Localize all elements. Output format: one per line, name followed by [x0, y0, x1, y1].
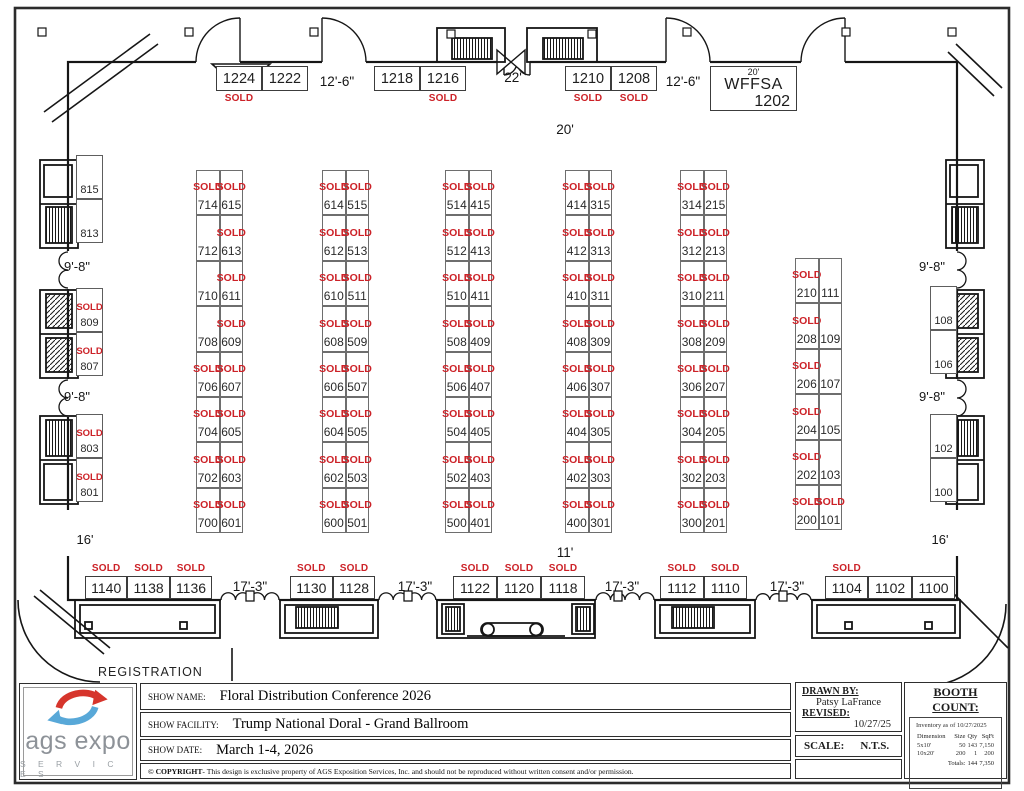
booth-number: 809: [80, 317, 98, 329]
booth-number: 610: [324, 289, 344, 303]
copyright-prefix: © COPYRIGHT: [148, 767, 202, 776]
booth-501[interactable]: SOLD501: [346, 488, 370, 533]
booth-number: 303: [590, 471, 610, 485]
dimension-label: 9'-8": [47, 389, 107, 404]
booth-count-cell: 143: [966, 742, 978, 751]
logo-subtext: S E R V I C E S: [20, 759, 136, 779]
booth-number: 507: [347, 380, 367, 394]
booth-511[interactable]: SOLD511: [346, 261, 370, 306]
booth-number: 201: [705, 516, 725, 530]
booth-403[interactable]: SOLD403: [469, 442, 493, 487]
sold-label: SOLD: [701, 499, 730, 511]
booth-1104[interactable]: 1104: [825, 576, 868, 599]
booth-1112[interactable]: 1112: [660, 576, 704, 599]
inventory-note: Inventory as of 10/27/2025: [916, 722, 995, 729]
booth-count-cell: 1: [966, 750, 978, 759]
booth-111[interactable]: 111: [819, 258, 843, 303]
booth-number: 607: [221, 380, 241, 394]
logo-text: ags expo: [25, 727, 130, 756]
booth-number: 209: [705, 335, 725, 349]
booth-number: 205: [705, 425, 725, 439]
booth-509[interactable]: SOLD509: [346, 306, 370, 351]
booth-number: 502: [447, 471, 467, 485]
booth-813[interactable]: 813: [76, 199, 103, 243]
sold-label: SOLD: [565, 93, 611, 104]
booth-407[interactable]: SOLD407: [469, 352, 493, 397]
registration-label: REGISTRATION: [98, 665, 238, 679]
booth-107[interactable]: 107: [819, 349, 843, 394]
dimension-label: 17'-3": [380, 579, 450, 594]
booth-number: 300: [682, 516, 702, 530]
booth-number: 612: [324, 244, 344, 258]
booth-100[interactable]: 100: [930, 458, 957, 502]
booth-number: 513: [347, 244, 367, 258]
dimension-label: 12'-6": [648, 74, 718, 89]
booth-number: 311: [591, 289, 610, 303]
booth-303[interactable]: SOLD303: [589, 442, 613, 487]
booth-count-cell: [916, 760, 947, 769]
booth-105[interactable]: 105: [819, 394, 843, 439]
sold-label: SOLD: [217, 318, 246, 330]
sold-label: SOLD: [466, 363, 495, 375]
booth-number: 600: [324, 516, 344, 530]
sold-label: SOLD: [170, 563, 212, 574]
booth-number: 400: [567, 516, 587, 530]
booth-count-cell: SqFt: [978, 733, 995, 742]
booth-611[interactable]: SOLD611: [220, 261, 244, 306]
ags-expo-logo: ags expo S E R V I C E S: [19, 683, 137, 780]
booth-1216[interactable]: 1216: [420, 66, 466, 91]
scale-value: N.T.S.: [860, 740, 889, 752]
booth-count-cell: 5x10': [916, 742, 947, 751]
sold-label: SOLD: [704, 563, 748, 574]
booth-1102[interactable]: 1102: [868, 576, 911, 599]
sold-label: SOLD: [290, 563, 333, 574]
booth-number: 108: [934, 315, 952, 327]
booth-count-box: BOOTH COUNT: Inventory as of 10/27/2025 …: [904, 682, 1007, 779]
booth-count-cell: Totals:: [947, 760, 967, 769]
booth-307[interactable]: SOLD307: [589, 352, 613, 397]
booth-505[interactable]: SOLD505: [346, 397, 370, 442]
booth-number: 608: [324, 335, 344, 349]
show-facility-value: Trump National Doral - Grand Ballroom: [233, 716, 469, 733]
logo-swirl-icon: [47, 685, 109, 729]
booth-315[interactable]: SOLD315: [589, 170, 613, 215]
dimension-label: 17'-3": [587, 579, 657, 594]
booth-507[interactable]: SOLD507: [346, 352, 370, 397]
booth-number: 315: [590, 198, 610, 212]
booth-515[interactable]: SOLD515: [346, 170, 370, 215]
booth-1100[interactable]: 1100: [912, 576, 955, 599]
booth-309[interactable]: SOLD309: [589, 306, 613, 351]
dimension-label: 9'-8": [902, 259, 962, 274]
sold-label: SOLD: [420, 93, 466, 104]
booth-401[interactable]: SOLD401: [469, 488, 493, 533]
booth-number: 505: [347, 425, 367, 439]
sold-label: SOLD: [701, 454, 730, 466]
dimension-label: 22': [478, 70, 548, 85]
booth-215[interactable]: SOLD215: [704, 170, 728, 215]
booth-number: 702: [198, 471, 218, 485]
booth-1122[interactable]: 1122: [453, 576, 497, 599]
booth-number: 200: [797, 513, 817, 527]
sold-label: SOLD: [343, 454, 372, 466]
booth-number: 211: [706, 289, 725, 303]
booth-count-table: DimensionSizeQtySqFt5x10'501437,15010x20…: [916, 733, 995, 769]
booth-311[interactable]: SOLD311: [589, 261, 613, 306]
booth-number: 411: [471, 289, 490, 303]
booth-number: 301: [590, 516, 610, 530]
booth-number: 100: [934, 487, 952, 499]
show-facility-label: SHOW FACILITY:: [148, 720, 219, 730]
sold-label: SOLD: [343, 363, 372, 375]
booth-number: 410: [567, 289, 587, 303]
booth-103[interactable]: 103: [819, 440, 843, 485]
booth-615[interactable]: SOLD615: [220, 170, 244, 215]
sold-label: SOLD: [453, 563, 497, 574]
sold-label: SOLD: [586, 454, 615, 466]
booth-count-cell: Size: [947, 733, 967, 742]
sold-label: SOLD: [816, 496, 845, 508]
sold-label: SOLD: [217, 454, 246, 466]
booth-number: 106: [934, 359, 952, 371]
booth-801[interactable]: SOLD801: [76, 458, 103, 502]
sold-label: SOLD: [586, 408, 615, 420]
booth-number: 509: [347, 335, 367, 349]
booth-809[interactable]: SOLD809: [76, 288, 103, 332]
booth-count-inner: Inventory as of 10/27/2025 DimensionSize…: [909, 717, 1002, 789]
booth-number: 503: [347, 471, 367, 485]
booth-209[interactable]: SOLD209: [704, 306, 728, 351]
booth-number: 111: [821, 286, 839, 300]
booth-count-cell: Qty: [966, 733, 978, 742]
booth-405[interactable]: SOLD405: [469, 397, 493, 442]
booth-number: 510: [447, 289, 467, 303]
booth-1130[interactable]: 1130: [290, 576, 333, 599]
booth-513[interactable]: SOLD513: [346, 215, 370, 260]
sold-label: SOLD: [586, 318, 615, 330]
sold-label: SOLD: [466, 454, 495, 466]
booth-number: 312: [682, 244, 702, 258]
booth-number: 306: [682, 380, 702, 394]
booth-count-cell: Dimension: [916, 733, 947, 742]
sold-label: SOLD: [333, 563, 376, 574]
booth-number: 714: [198, 198, 218, 212]
sold-label: SOLD: [343, 181, 372, 193]
booth-number: 813: [80, 228, 98, 240]
booth-number: 500: [447, 516, 467, 530]
revised-label: REVISED:: [802, 708, 895, 719]
sold-label: SOLD: [466, 499, 495, 511]
sold-label: SOLD: [217, 363, 246, 375]
booth-number: 210: [797, 286, 817, 300]
sold-label: SOLD: [343, 272, 372, 284]
booth-number: 409: [470, 335, 490, 349]
dimension-label: 17'-3": [215, 579, 285, 594]
show-name-row: SHOW NAME: Floral Distribution Conferenc…: [140, 683, 791, 710]
dimension-label: 16': [55, 532, 115, 547]
booth-number: 801: [80, 487, 98, 499]
booth-count-cell: 200: [947, 750, 967, 759]
booth-207[interactable]: SOLD207: [704, 352, 728, 397]
title-block: ags expo S E R V I C E S SHOW NAME: Flor…: [16, 680, 1008, 782]
sold-label: SOLD: [466, 272, 495, 284]
booth-313[interactable]: SOLD313: [589, 215, 613, 260]
booth-number: 602: [324, 471, 344, 485]
booth-count-cell: 10x20': [916, 750, 947, 759]
booth-number: 305: [590, 425, 610, 439]
booth-number: 402: [567, 471, 587, 485]
booth-807[interactable]: SOLD807: [76, 332, 103, 376]
booth-1224[interactable]: 1224: [216, 66, 262, 91]
booth-number: 102: [934, 443, 952, 455]
booth-number: 515: [347, 198, 367, 212]
show-name-value: Floral Distribution Conference 2026: [220, 688, 431, 705]
booth-number: 604: [324, 425, 344, 439]
booth-number: 508: [447, 335, 467, 349]
booth-number: 506: [447, 380, 467, 394]
sold-label: SOLD: [76, 346, 102, 357]
booth-607[interactable]: SOLD607: [220, 352, 244, 397]
sold-label: SOLD: [85, 563, 127, 574]
empty-box: [795, 759, 902, 779]
booth-number: 504: [447, 425, 467, 439]
booth-815[interactable]: 815: [76, 155, 103, 199]
booth-count-cell: 7,350: [978, 760, 995, 769]
dim-bottom-center: 11': [535, 545, 595, 560]
sold-label: SOLD: [792, 406, 821, 418]
sold-label: SOLD: [586, 227, 615, 239]
sold-label: SOLD: [343, 227, 372, 239]
sold-label: SOLD: [701, 408, 730, 420]
sold-label: SOLD: [586, 181, 615, 193]
booth-411[interactable]: SOLD411: [469, 261, 493, 306]
booth-number: 406: [567, 380, 587, 394]
booth-number: 403: [470, 471, 490, 485]
booth-number: 309: [590, 335, 610, 349]
booth-203[interactable]: SOLD203: [704, 442, 728, 487]
sold-label: SOLD: [76, 428, 102, 439]
booth-number: 304: [682, 425, 702, 439]
sold-label: SOLD: [792, 360, 821, 372]
floorplan-sheet: 1224SOLD122212181216SOLD1210SOLD1208SOLD…: [0, 0, 1024, 791]
dimension-label: 17'-3": [752, 579, 822, 594]
sold-label: SOLD: [701, 181, 730, 193]
sold-label: SOLD: [466, 318, 495, 330]
booth-213[interactable]: SOLD213: [704, 215, 728, 260]
booth-1120[interactable]: 1120: [497, 576, 541, 599]
booth-number: 605: [221, 425, 241, 439]
sold-label: SOLD: [217, 408, 246, 420]
booth-1138[interactable]: 1138: [127, 576, 169, 599]
booth-409[interactable]: SOLD409: [469, 306, 493, 351]
booth-number: 512: [447, 244, 467, 258]
sold-label: SOLD: [343, 408, 372, 420]
booth-number: 803: [80, 443, 98, 455]
copyright-row: © COPYRIGHT - This design is exclusive p…: [140, 763, 791, 779]
dimension-label: 9'-8": [47, 259, 107, 274]
booth-number: 206: [797, 377, 817, 391]
booth-204[interactable]: SOLD204: [795, 394, 819, 439]
sold-label: SOLD: [217, 499, 246, 511]
show-facility-row: SHOW FACILITY: Trump National Doral - Gr…: [140, 712, 791, 737]
booth-number: 511: [348, 289, 367, 303]
booth-number: 408: [567, 335, 587, 349]
drawn-by-box: DRAWN BY: Patsy LaFrance REVISED: 10/27/…: [795, 682, 902, 732]
dimension-label: 12'-6": [302, 74, 372, 89]
show-date-label: SHOW DATE:: [148, 745, 202, 755]
booth-number: 202: [797, 468, 817, 482]
booth-number: 302: [682, 471, 702, 485]
booth-number: 308: [682, 335, 702, 349]
booth-803[interactable]: SOLD803: [76, 414, 103, 458]
sold-label: SOLD: [466, 181, 495, 193]
booth-413[interactable]: SOLD413: [469, 215, 493, 260]
booth-number: 807: [80, 361, 98, 373]
booth-609[interactable]: SOLD609: [220, 306, 244, 351]
show-name-label: SHOW NAME:: [148, 692, 206, 702]
booth-106[interactable]: 106: [930, 330, 957, 374]
show-date-row: SHOW DATE: March 1-4, 2026: [140, 739, 791, 761]
booth-number: 611: [222, 289, 241, 303]
booth-number: 609: [221, 335, 241, 349]
drawn-by-label: DRAWN BY:: [802, 686, 895, 697]
booth-number: 207: [705, 380, 725, 394]
sold-label: SOLD: [586, 272, 615, 284]
booth-number: 708: [198, 335, 218, 349]
revised-value: 10/27/25: [802, 719, 895, 730]
booth-number: 706: [198, 380, 218, 394]
sold-label: SOLD: [660, 563, 704, 574]
booth-number: 413: [470, 244, 490, 258]
booth-number: 704: [198, 425, 218, 439]
sold-label: SOLD: [792, 315, 821, 327]
booth-number: 614: [324, 198, 344, 212]
sold-label: SOLD: [76, 472, 102, 483]
booth-number: 208: [797, 332, 817, 346]
booth-1136[interactable]: 1136: [170, 576, 212, 599]
booth-company-name: WFFSA: [711, 77, 796, 94]
booth-205[interactable]: SOLD205: [704, 397, 728, 442]
booth-number: 712: [198, 244, 218, 258]
sold-label: SOLD: [127, 563, 169, 574]
booth-number: 107: [820, 377, 840, 391]
booth-count-title: BOOTH COUNT:: [909, 685, 1002, 715]
sold-label: SOLD: [792, 269, 821, 281]
booth-count-cell: 50: [947, 742, 967, 751]
sold-label: SOLD: [701, 363, 730, 375]
sold-label: SOLD: [217, 272, 246, 284]
sold-label: SOLD: [701, 227, 730, 239]
booth-1128[interactable]: 1128: [333, 576, 376, 599]
booth-101[interactable]: SOLD101: [819, 485, 843, 530]
sold-label: SOLD: [541, 563, 585, 574]
sold-label: SOLD: [497, 563, 541, 574]
sold-label: SOLD: [343, 499, 372, 511]
sold-label: SOLD: [611, 93, 657, 104]
booth-count-cell: 7,150: [978, 742, 995, 751]
dimension-label: 16': [910, 532, 970, 547]
booth-number: 405: [470, 425, 490, 439]
booth-number: 105: [820, 423, 840, 437]
sold-label: SOLD: [792, 451, 821, 463]
scale-box: SCALE: N.T.S.: [795, 735, 902, 757]
booth-211[interactable]: SOLD211: [704, 261, 728, 306]
sold-label: SOLD: [76, 302, 102, 313]
sold-label: SOLD: [586, 499, 615, 511]
booth-count-cell: 144: [966, 760, 978, 769]
booth-1140[interactable]: 1140: [85, 576, 127, 599]
booth-number: 203: [705, 471, 725, 485]
booth-number: 313: [590, 244, 610, 258]
booth-108[interactable]: 108: [930, 286, 957, 330]
booth-number: 314: [682, 198, 702, 212]
booth-206[interactable]: SOLD206: [795, 349, 819, 394]
dim-top-center: 20': [535, 122, 595, 137]
booth-1218[interactable]: 1218: [374, 66, 420, 91]
booth-1110[interactable]: 1110: [704, 576, 748, 599]
booth-number: 700: [198, 516, 218, 530]
booth-109[interactable]: 109: [819, 303, 843, 348]
booth-number: 103: [820, 468, 840, 482]
scale-label: SCALE:: [804, 740, 844, 752]
sold-label: SOLD: [216, 93, 262, 104]
booth-301[interactable]: SOLD301: [589, 488, 613, 533]
booth-number: 501: [347, 516, 367, 530]
booth-number: 404: [567, 425, 587, 439]
booth-number: 601: [221, 516, 241, 530]
booth-210[interactable]: SOLD210: [795, 258, 819, 303]
booth-number: 204: [797, 423, 817, 437]
booth-208[interactable]: SOLD208: [795, 303, 819, 348]
booth-601[interactable]: SOLD601: [220, 488, 244, 533]
booth-102[interactable]: 102: [930, 414, 957, 458]
copyright-text: - This design is exclusive property of A…: [202, 767, 633, 776]
booth-number: 514: [447, 198, 467, 212]
booth-605[interactable]: SOLD605: [220, 397, 244, 442]
booth-603[interactable]: SOLD603: [220, 442, 244, 487]
booth-number: 307: [590, 380, 610, 394]
sold-label: SOLD: [466, 408, 495, 420]
booth-number: 101: [820, 513, 840, 527]
booth-count-cell: 200: [978, 750, 995, 759]
sold-label: SOLD: [217, 227, 246, 239]
booth-number: 412: [567, 244, 587, 258]
booth-415[interactable]: SOLD415: [469, 170, 493, 215]
booth-1118[interactable]: 1118: [541, 576, 585, 599]
booth-number: 615: [221, 198, 241, 212]
booth-1202-wffsa[interactable]: 20' WFFSA 1202: [710, 66, 797, 111]
booth-201[interactable]: SOLD201: [704, 488, 728, 533]
booth-613[interactable]: SOLD613: [220, 215, 244, 260]
sold-label: SOLD: [466, 227, 495, 239]
sold-label: SOLD: [586, 363, 615, 375]
sold-label: SOLD: [343, 318, 372, 330]
booth-305[interactable]: SOLD305: [589, 397, 613, 442]
booth-number: 603: [221, 471, 241, 485]
booth-number: 1202: [711, 94, 796, 111]
booth-503[interactable]: SOLD503: [346, 442, 370, 487]
booth-number: 606: [324, 380, 344, 394]
booth-number: 215: [705, 198, 725, 212]
booth-number: 710: [198, 289, 218, 303]
booth-202[interactable]: SOLD202: [795, 440, 819, 485]
booth-1210[interactable]: 1210: [565, 66, 611, 91]
booth-number: 415: [470, 198, 490, 212]
booth-number: 401: [470, 516, 490, 530]
sold-label: SOLD: [701, 272, 730, 284]
sold-label: SOLD: [701, 318, 730, 330]
